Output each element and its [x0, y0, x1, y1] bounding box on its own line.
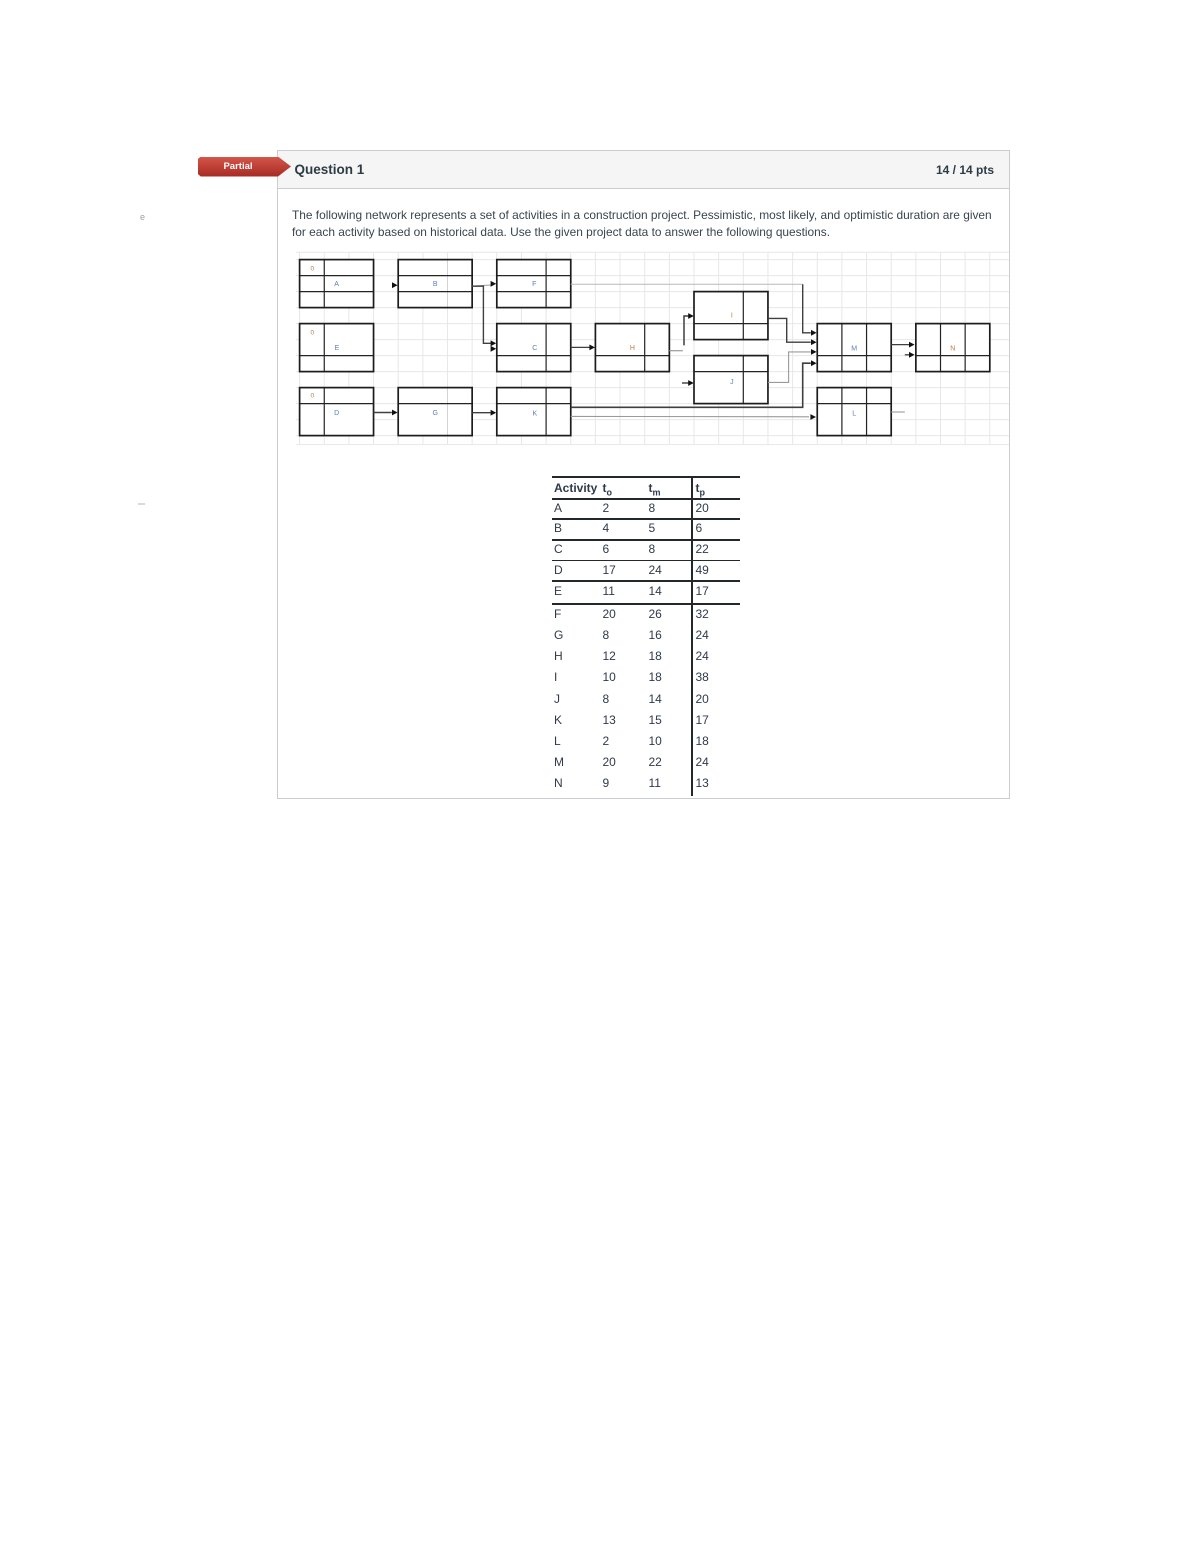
svg-text:E: E	[335, 345, 340, 352]
svg-text:A: A	[334, 281, 339, 288]
svg-text:L: L	[852, 410, 856, 417]
svg-text:C: C	[532, 345, 537, 352]
svg-text:N: N	[950, 346, 955, 353]
svg-text:M: M	[851, 346, 857, 353]
svg-text:J: J	[730, 379, 734, 386]
svg-text:0: 0	[310, 265, 314, 272]
svg-text:H: H	[630, 345, 635, 352]
svg-text:I: I	[731, 313, 733, 320]
svg-text:F: F	[532, 281, 536, 288]
svg-text:G: G	[432, 410, 437, 417]
svg-text:0: 0	[310, 392, 314, 399]
svg-text:B: B	[433, 281, 438, 288]
svg-text:K: K	[532, 410, 537, 417]
svg-text:0: 0	[310, 329, 314, 336]
svg-text:D: D	[334, 410, 339, 417]
